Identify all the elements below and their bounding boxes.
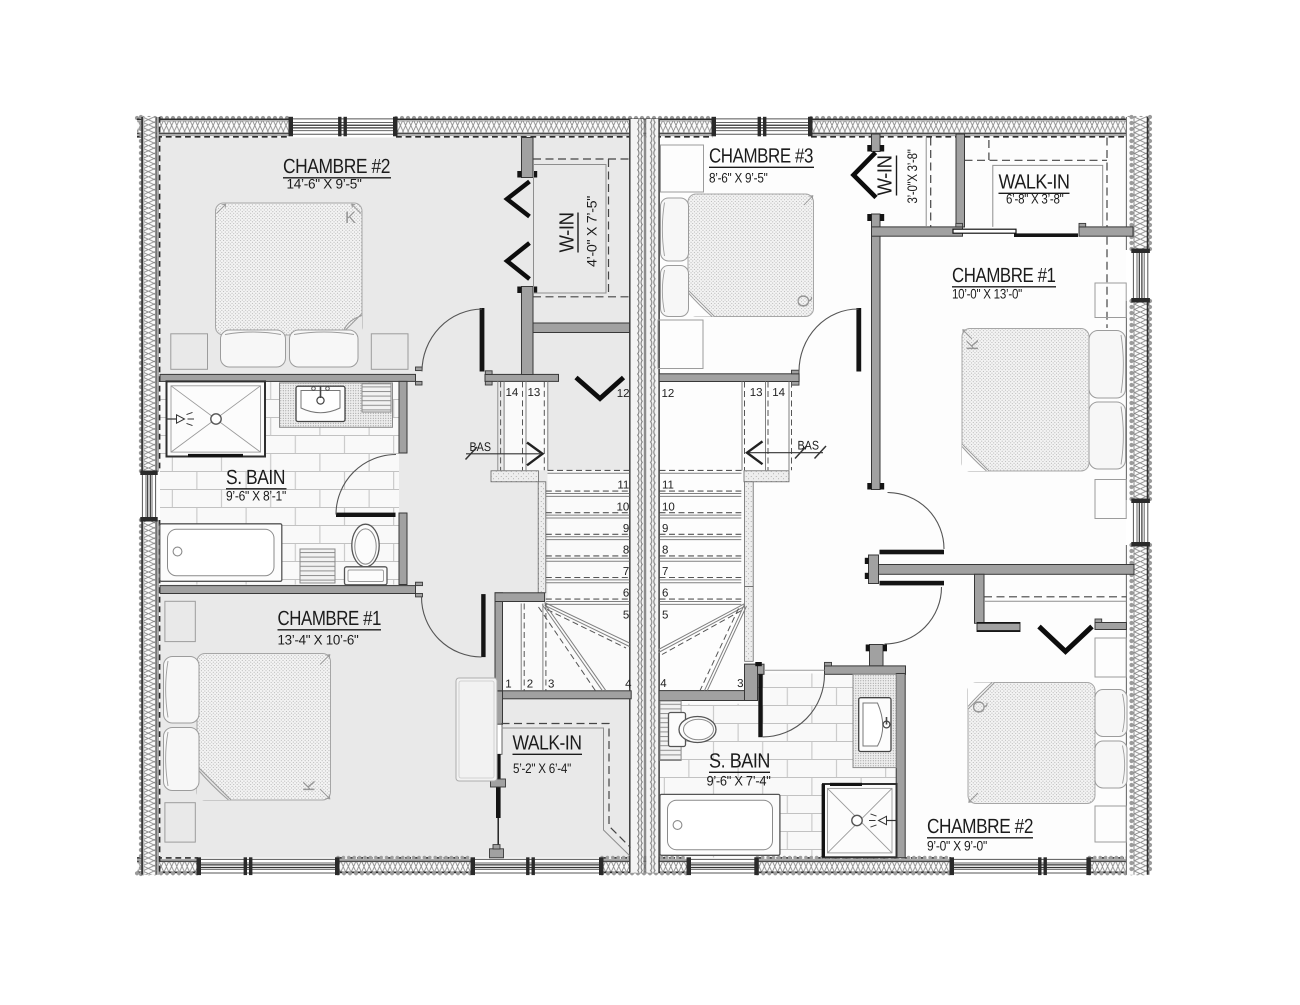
svg-text:WALK-IN: WALK-IN bbox=[513, 732, 582, 755]
svg-text:4’-0" X 7’-5": 4’-0" X 7’-5" bbox=[585, 196, 600, 267]
svg-text:S. BAIN: S. BAIN bbox=[709, 750, 770, 773]
svg-text:WALK-IN: WALK-IN bbox=[999, 171, 1070, 194]
svg-text:9’-0" X 9’-0": 9’-0" X 9’-0" bbox=[927, 839, 987, 854]
svg-text:14: 14 bbox=[506, 387, 519, 399]
svg-text:K: K bbox=[345, 209, 356, 227]
svg-text:6: 6 bbox=[623, 588, 629, 600]
svg-text:S. BAIN: S. BAIN bbox=[226, 466, 285, 489]
svg-text:12: 12 bbox=[617, 388, 630, 400]
svg-text:8: 8 bbox=[662, 545, 668, 557]
svg-text:5: 5 bbox=[623, 609, 629, 621]
svg-text:14’-6" X 9’-5": 14’-6" X 9’-5" bbox=[287, 177, 362, 192]
svg-text:10: 10 bbox=[662, 501, 675, 513]
svg-text:CHAMBRE #1: CHAMBRE #1 bbox=[278, 607, 382, 630]
svg-text:11: 11 bbox=[662, 480, 674, 492]
svg-text:W-IN: W-IN bbox=[556, 213, 579, 253]
svg-text:BAS: BAS bbox=[798, 439, 820, 453]
svg-text:CHAMBRE #2: CHAMBRE #2 bbox=[927, 815, 1033, 838]
svg-text:12: 12 bbox=[662, 388, 675, 400]
svg-text:9’-6" X 8’-1": 9’-6" X 8’-1" bbox=[226, 489, 286, 504]
svg-text:CHAMBRE #1: CHAMBRE #1 bbox=[952, 264, 1056, 287]
svg-text:8: 8 bbox=[623, 545, 629, 557]
svg-text:9: 9 bbox=[662, 523, 668, 535]
svg-text:CHAMBRE #2: CHAMBRE #2 bbox=[283, 155, 390, 178]
svg-text:1: 1 bbox=[505, 679, 511, 691]
svg-text:3: 3 bbox=[737, 678, 743, 690]
svg-text:W-IN: W-IN bbox=[874, 156, 897, 196]
svg-text:7: 7 bbox=[623, 566, 629, 578]
svg-text:13: 13 bbox=[528, 387, 541, 399]
svg-text:10’-0" X 13’-0": 10’-0" X 13’-0" bbox=[952, 287, 1022, 302]
svg-text:6’-8" X 3’-8": 6’-8" X 3’-8" bbox=[1006, 192, 1064, 207]
svg-text:4: 4 bbox=[660, 678, 667, 690]
svg-text:7: 7 bbox=[662, 566, 668, 578]
svg-text:4: 4 bbox=[625, 679, 632, 691]
svg-text:K: K bbox=[964, 339, 982, 350]
svg-text:2: 2 bbox=[527, 679, 533, 691]
svg-text:14: 14 bbox=[772, 387, 785, 399]
svg-text:3: 3 bbox=[548, 679, 554, 691]
svg-text:5’-2" X 6’-4": 5’-2" X 6’-4" bbox=[513, 761, 571, 776]
svg-text:8’-6" X 9’-5": 8’-6" X 9’-5" bbox=[709, 171, 768, 186]
svg-text:9: 9 bbox=[623, 523, 629, 535]
svg-text:11: 11 bbox=[617, 480, 629, 492]
svg-text:6: 6 bbox=[662, 588, 668, 600]
svg-text:3’-0"X 3’-8": 3’-0"X 3’-8" bbox=[905, 149, 920, 203]
svg-text:CHAMBRE #3: CHAMBRE #3 bbox=[709, 145, 813, 168]
svg-text:13: 13 bbox=[750, 387, 763, 399]
svg-text:Q: Q bbox=[795, 294, 813, 307]
svg-text:K: K bbox=[301, 780, 319, 791]
svg-text:10: 10 bbox=[617, 501, 630, 513]
svg-text:5: 5 bbox=[662, 609, 668, 621]
svg-text:9’-6" X 7’-4": 9’-6" X 7’-4" bbox=[707, 774, 771, 789]
svg-text:Q: Q bbox=[971, 700, 989, 713]
svg-text:13’-4" X 10’-6": 13’-4" X 10’-6" bbox=[278, 633, 359, 648]
